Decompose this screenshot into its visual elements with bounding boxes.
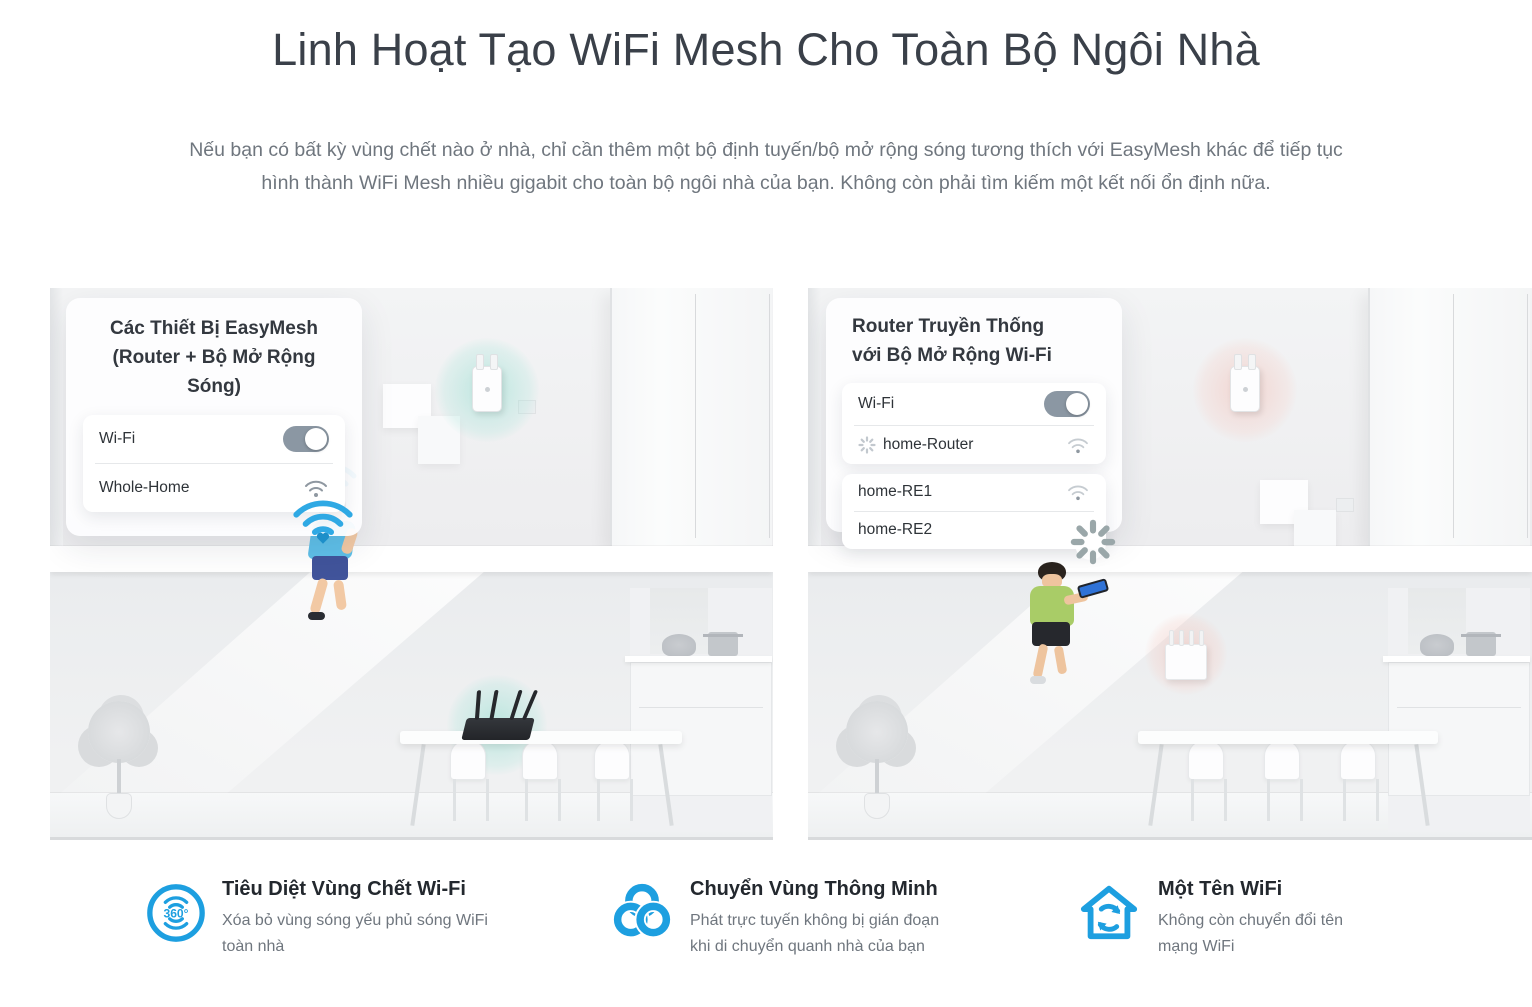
range-extender-device	[1230, 366, 1260, 412]
dining-chair	[522, 740, 558, 780]
card-title-line: với Bộ Mở Rộng Wi-Fi	[852, 342, 1122, 371]
feature-description: Không còn chuyển đổi tên mạng WiFi	[1158, 908, 1363, 959]
wifi-heart-icon	[287, 488, 359, 546]
light-switch	[1336, 498, 1354, 512]
extender-list-panel: home-RE1 home-RE2	[842, 474, 1106, 549]
card-title-line: Sóng)	[66, 373, 362, 402]
feature-dead-zone: 360° Tiêu Diệt Vùng Chết Wi-Fi Xóa bỏ vù…	[145, 878, 494, 959]
kitchen-cabinet	[630, 662, 772, 796]
traditional-info-card: Router Truyền Thống với Bộ Mở Rộng Wi-Fi…	[826, 298, 1122, 532]
network-name: home-Router	[883, 436, 973, 454]
smart-roaming-icon	[612, 882, 672, 942]
kitchen-cabinet	[1388, 662, 1530, 796]
feature-smart-roaming: Chuyển Vùng Thông Minh Phát trực tuyến k…	[612, 878, 945, 959]
saucepan	[1466, 632, 1496, 656]
network-name: home-RE1	[858, 483, 932, 501]
tablet	[1077, 578, 1109, 599]
easymesh-info-card: Các Thiết Bị EasyMesh (Router + Bộ Mở Rộ…	[66, 298, 362, 536]
dining-chair	[594, 740, 630, 780]
floor-slab	[808, 546, 1532, 572]
single-wifi-name-icon	[1078, 882, 1140, 944]
wifi-router-device	[461, 718, 534, 740]
page-description: Nếu bạn có bất kỳ vùng chết nào ở nhà, c…	[174, 134, 1359, 200]
card-title-line: Các Thiết Bị EasyMesh	[66, 315, 362, 344]
card-title-line: Router Truyền Thống	[852, 313, 1122, 342]
weak-wifi-signal-icon	[1066, 483, 1090, 501]
wifi-settings-panel: Wi-Fi home-Router	[842, 383, 1106, 464]
wardrobe	[1368, 288, 1530, 546]
dining-chair	[1188, 740, 1224, 780]
wifi-label: Wi-Fi	[99, 430, 135, 448]
coverage-360-icon: 360°	[145, 882, 207, 944]
kitchen-counter	[1383, 656, 1530, 662]
dining-chair	[450, 740, 486, 780]
feature-title: Chuyển Vùng Thông Minh	[690, 878, 945, 901]
page-title: Linh Hoạt Tạo WiFi Mesh Cho Toàn Bộ Ngôi…	[0, 24, 1532, 76]
kitchen-counter	[625, 656, 772, 662]
wifi-router-device	[1165, 644, 1207, 680]
wifi-toggle-graphic	[1044, 391, 1090, 417]
potted-plant	[838, 701, 918, 829]
walking-person-with-tablet	[1012, 562, 1108, 702]
kettle	[1420, 634, 1454, 656]
weak-wifi-signal-icon	[1066, 436, 1090, 454]
dining-chair	[1340, 740, 1376, 780]
network-name: Whole-Home	[99, 479, 189, 497]
wardrobe	[610, 288, 772, 546]
feature-description: Phát trực tuyến không bị gián đoạn khi d…	[690, 908, 945, 959]
searching-spinner-icon	[1070, 519, 1116, 565]
feature-description: Xóa bỏ vùng sóng yếu phủ sóng WiFi toàn …	[222, 908, 494, 959]
feature-title: Một Tên WiFi	[1158, 878, 1363, 901]
connecting-spinner-icon	[858, 436, 876, 454]
potted-plant	[80, 701, 160, 829]
svg-text:360°: 360°	[163, 906, 188, 920]
wifi-settings-panel: Wi-Fi Whole-Home	[83, 415, 345, 512]
traditional-scene-image: Router Truyền Thống với Bộ Mở Rộng Wi-Fi…	[808, 288, 1532, 840]
wifi-label: Wi-Fi	[858, 395, 894, 413]
dining-table	[1138, 731, 1438, 744]
feature-title: Tiêu Diệt Vùng Chết Wi-Fi	[222, 878, 494, 901]
dining-table	[400, 731, 682, 744]
easymesh-scene-image: Các Thiết Bị EasyMesh (Router + Bộ Mở Rộ…	[50, 288, 773, 840]
range-extender-device	[472, 366, 502, 412]
wifi-toggle-graphic	[283, 426, 329, 452]
network-name: home-RE2	[858, 521, 932, 539]
floor-slab	[50, 546, 773, 572]
kettle	[662, 634, 696, 656]
card-title-line: (Router + Bộ Mở Rộng	[66, 344, 362, 373]
dining-chair	[1264, 740, 1300, 780]
feature-one-wifi-name: Một Tên WiFi Không còn chuyển đổi tên mạ…	[1078, 878, 1363, 959]
saucepan	[708, 632, 738, 656]
